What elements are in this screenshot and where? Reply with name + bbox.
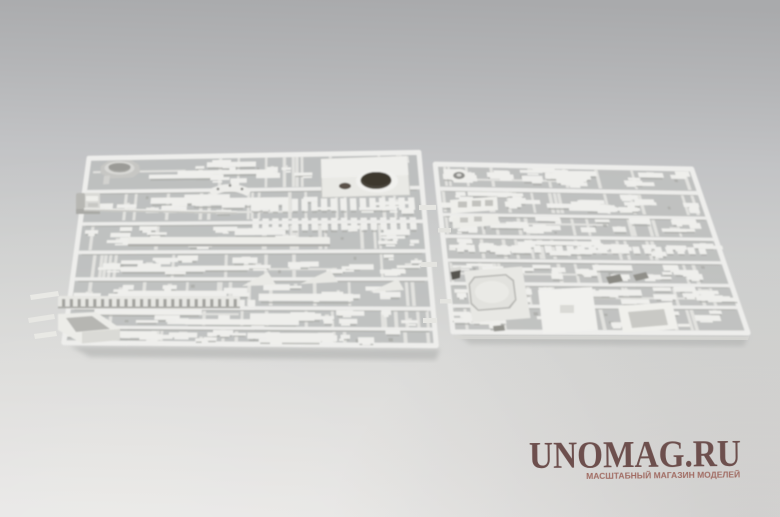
svg-text:МАСШТАБНЫЙ МАГАЗИН МОДЕЛЕЙ: МАСШТАБНЫЙ МАГАЗИН МОДЕЛЕЙ	[586, 470, 741, 481]
